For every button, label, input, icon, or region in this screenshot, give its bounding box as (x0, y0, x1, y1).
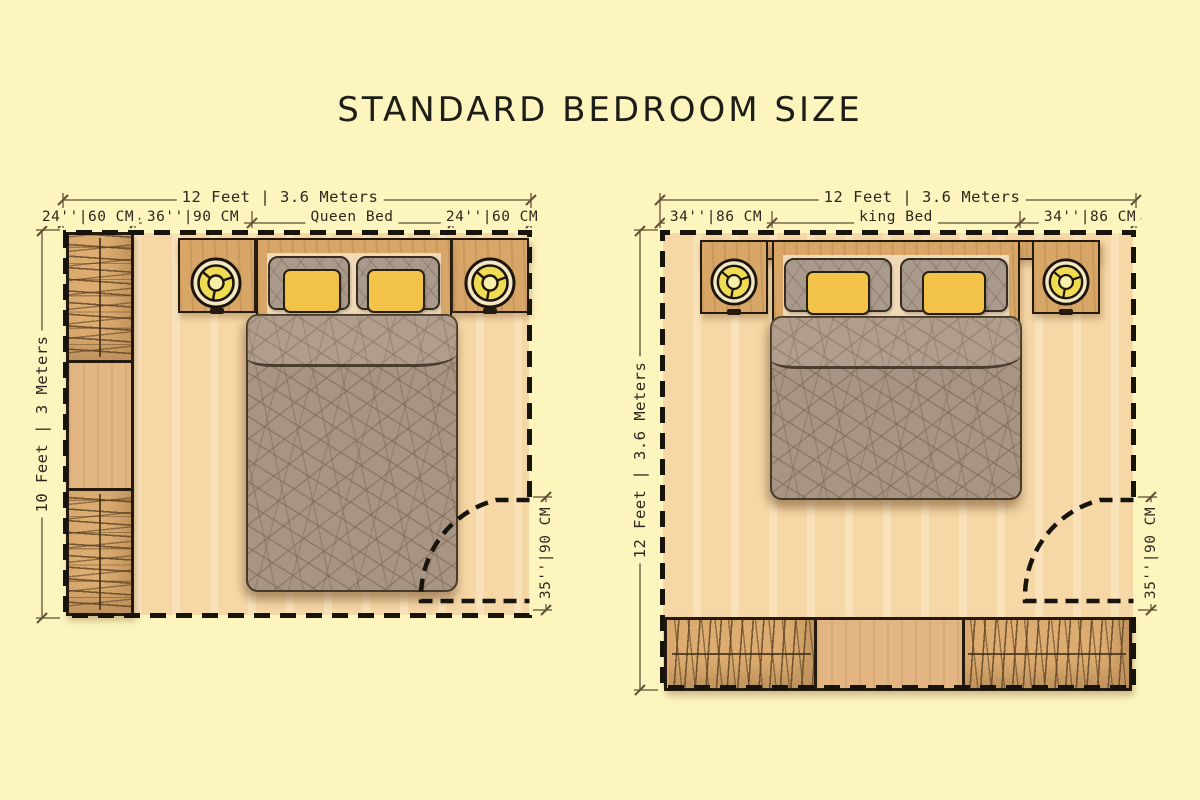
queen-door-width-label: 35''|90 CM (537, 502, 555, 604)
queen-depth-dimension-label: 10 Feet | 3 Meters (33, 331, 51, 518)
queen-segment-label-bed: Queen Bed (305, 208, 398, 226)
queen-segment-label-gap: 36''|90 CM (142, 208, 244, 226)
king-width-dimension-label: 12 Feet | 3.6 Meters (819, 188, 1026, 206)
king-segment-label-nightstand-right: 34''|86 CM (1039, 208, 1141, 226)
queen-segment-label-nightstand-right: 24''|60 CM (441, 208, 543, 226)
king-segment-label-bed: king Bed (854, 208, 938, 226)
queen-segment-label-nightstand-left: 24''|60 CM (37, 208, 139, 226)
king-depth-dimension-label: 12 Feet | 3.6 Meters (631, 357, 649, 564)
king-door-width-label: 35''|90 CM (1142, 502, 1160, 604)
bedroom-size-diagram: STANDARD BEDROOM SIZE 12 Feet | 3.6 Mete… (0, 0, 1200, 800)
king-segment-label-nightstand-left: 34''|86 CM (665, 208, 767, 226)
queen-door-swing-arc (421, 500, 530, 601)
queen-width-dimension-label: 12 Feet | 3.6 Meters (177, 188, 384, 206)
dimension-ticks (37, 195, 1156, 695)
queen-room-walls (66, 233, 530, 616)
king-room-walls (663, 233, 1134, 688)
page-title: STANDARD BEDROOM SIZE (0, 90, 1200, 130)
king-door-swing-arc (1025, 500, 1134, 601)
